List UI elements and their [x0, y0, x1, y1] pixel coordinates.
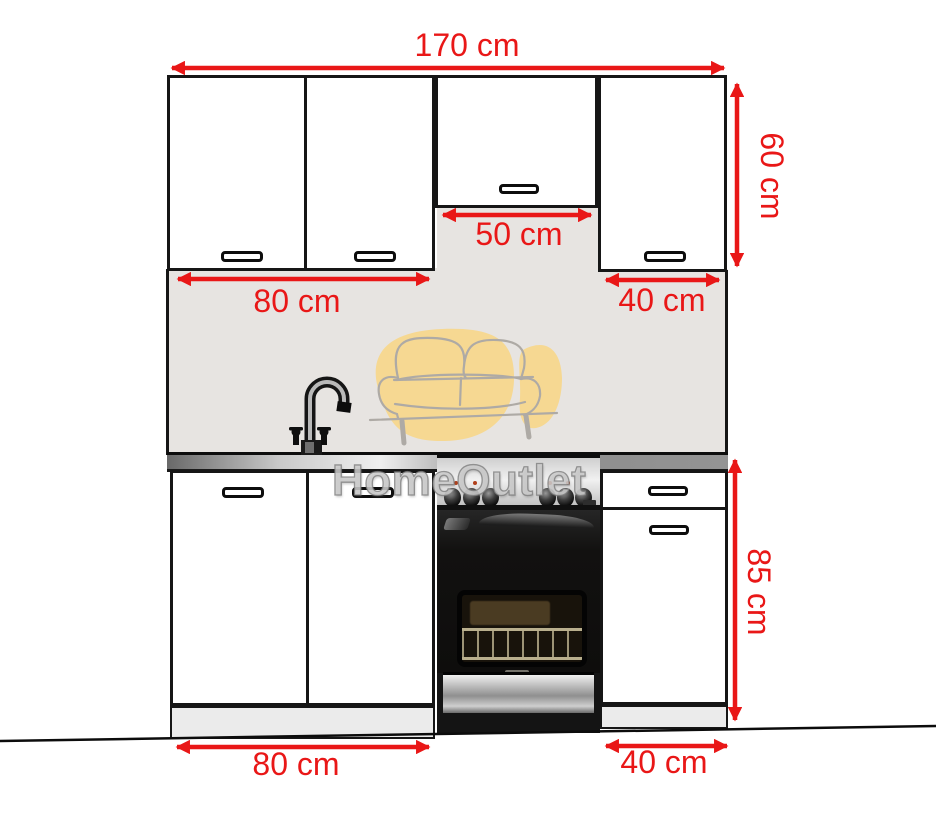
oven-rack	[462, 657, 582, 660]
base-cabinet-right-door	[600, 507, 728, 705]
base-cabinet-right-plinth	[600, 705, 728, 729]
oven-door	[437, 510, 600, 673]
oven-door-handle	[479, 512, 594, 531]
base-cabinet-right-drawer-handle	[648, 486, 688, 496]
base-cabinet-left-plinth	[170, 706, 435, 739]
dim-label-wall-middle-width: 50 cm	[475, 218, 562, 250]
wall-cabinet-left-door-divider	[304, 77, 307, 269]
base-cabinet-left-door-divider	[306, 472, 309, 704]
backsplash-left-edge	[166, 269, 169, 455]
dim-label-total-width: 170 cm	[415, 29, 520, 61]
wall-cabinet-left	[167, 75, 435, 271]
brand-watermark: HomeOutlet	[332, 459, 586, 503]
base-cabinet-left-handle-1	[222, 487, 264, 498]
oven-food-tray	[470, 601, 550, 625]
base-cabinet-left	[170, 470, 435, 706]
oven-door-reflection	[443, 518, 471, 530]
kitchen-dimension-diagram: HomeOutlet 170 cm 60 cm 50 cm 80 cm 40 c…	[0, 0, 936, 815]
wall-cabinet-right	[598, 75, 727, 272]
dim-label-base-right-width: 40 cm	[620, 746, 707, 778]
dim-label-wall-left-width: 80 cm	[253, 285, 340, 317]
oven-rack-grid	[462, 631, 582, 657]
dim-label-wall-right-width: 40 cm	[618, 284, 705, 316]
dim-label-base-height: 85 cm	[743, 548, 775, 635]
wall-cabinet-left-handle-2	[354, 251, 396, 262]
dim-label-base-left-width: 80 cm	[252, 748, 339, 780]
wall-cabinet-left-handle-1	[221, 251, 263, 262]
dim-label-wall-height: 60 cm	[756, 132, 788, 219]
wall-cabinet-middle-handle	[499, 184, 539, 194]
backsplash-right-edge	[725, 270, 728, 455]
wall-cabinet-right-handle	[644, 251, 686, 262]
base-cabinet-right-door-handle	[649, 525, 689, 535]
oven-storage-drawer	[443, 672, 594, 713]
oven-window	[457, 590, 587, 667]
